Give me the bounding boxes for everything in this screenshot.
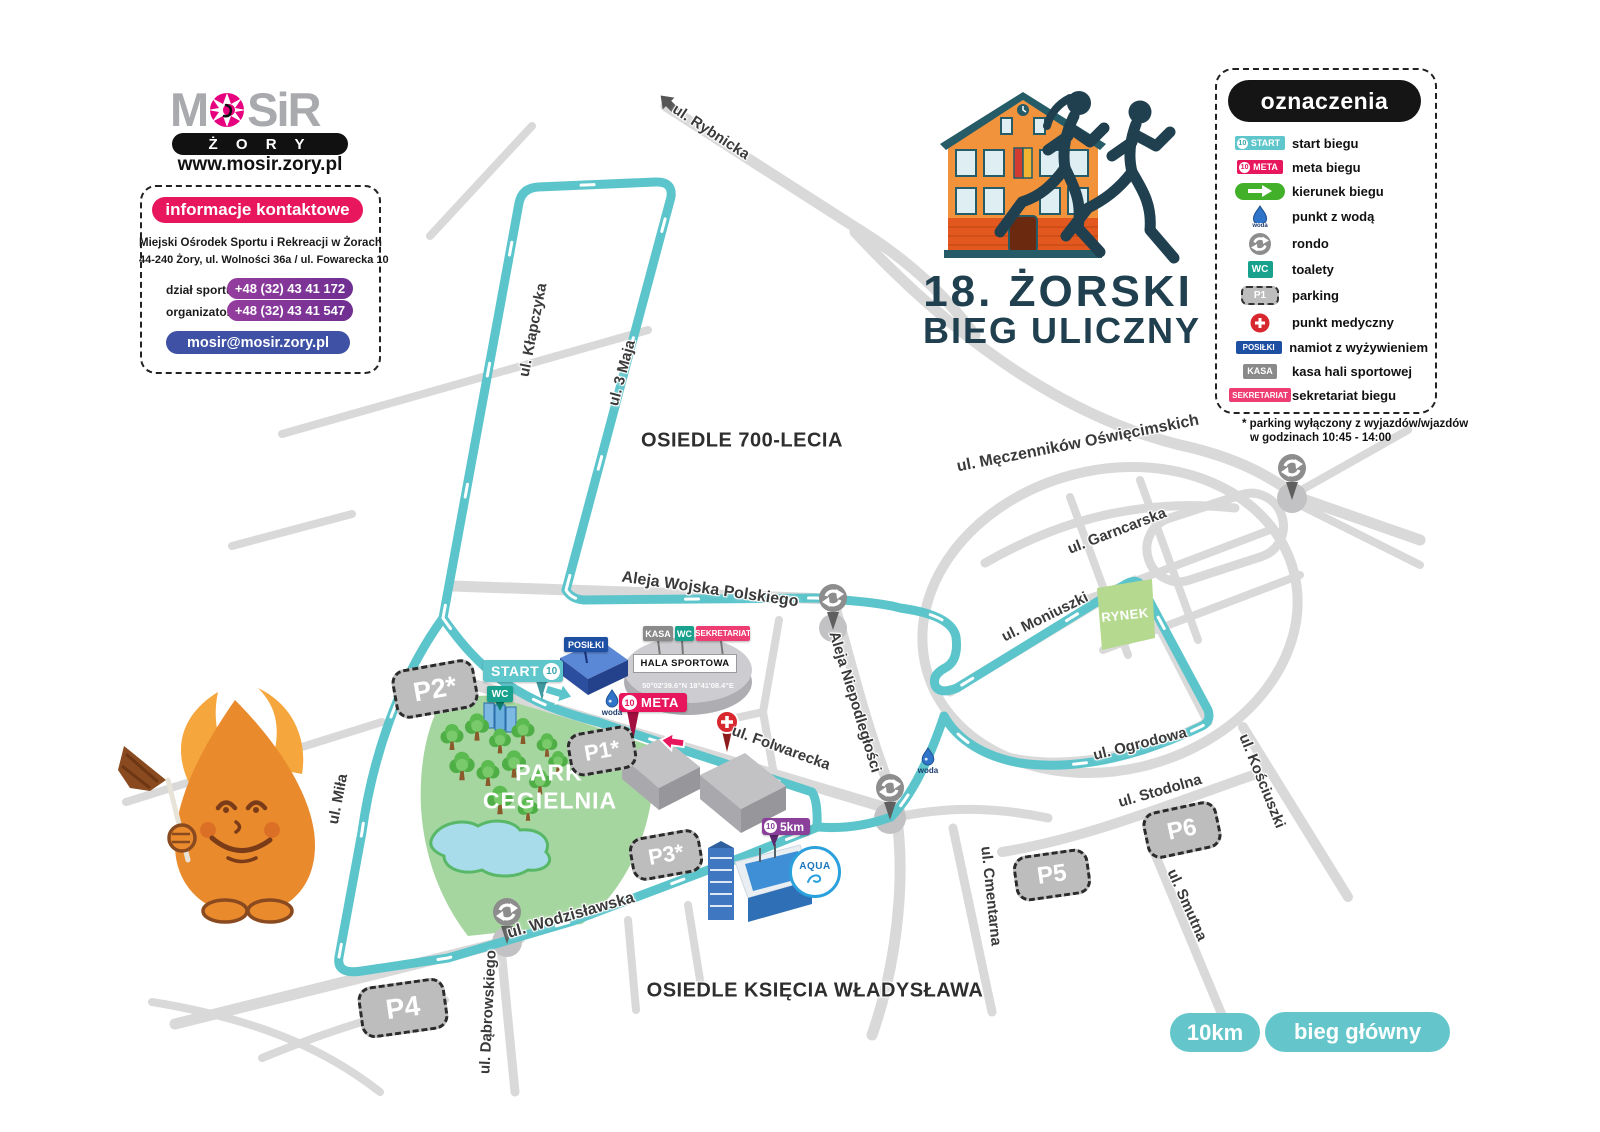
water-drop-icon: woda (1228, 205, 1292, 229)
parking-p5-label: P5 (1036, 859, 1069, 891)
legend-item-parking: P1 parking (1228, 282, 1428, 309)
legend-label-meals: namiot z wyżywieniem (1289, 340, 1428, 355)
legend-item-wc: WC toalety (1228, 257, 1428, 282)
kasa-flag: KASA (643, 626, 673, 641)
legend-start-num: 10 (1237, 138, 1248, 149)
contact-row-organizer-label: organizator (166, 305, 231, 319)
start-marker-label: START (491, 663, 539, 679)
legend-item-meta: 10 META meta biegu (1228, 155, 1428, 179)
kasa-legend-icon: KASA (1228, 364, 1292, 379)
start-badge-icon: 10 START (1228, 136, 1292, 150)
legend-label-secretariat: sekretariat biegu (1292, 388, 1396, 403)
legend-label-parking: parking (1292, 288, 1339, 303)
legend-item-medical: punkt medyczny (1228, 309, 1428, 336)
meta-marker-distance: 10 (622, 695, 637, 710)
legend-item-start: 10 START start biegu (1228, 131, 1428, 155)
posilki-legend-icon: POSIŁKI (1228, 341, 1289, 354)
sekretariat-flag: SEKRETARIAT (696, 626, 750, 641)
km5-marker-distance: 10 (764, 820, 777, 833)
contact-row-sport-phone: +48 (32) 43 41 172 (227, 278, 353, 299)
legend-label-start: start biegu (1292, 136, 1358, 151)
aquapark-logo-text: AQUA (799, 861, 830, 872)
start-marker-distance: 10 (543, 663, 560, 680)
mosir-logo-sir: SiR (247, 86, 319, 133)
legend-label-wc: toalety (1292, 262, 1334, 277)
aquapark-logo: AQUA (789, 846, 841, 898)
zory-city-label: Ż O R Y (209, 136, 312, 153)
contact-title: informacje kontaktowe (152, 197, 363, 223)
legend-item-rondo: rondo (1228, 230, 1428, 257)
medical-legend-icon (1228, 313, 1292, 333)
water-point-label: woda (602, 708, 622, 717)
start-marker: START 10 (483, 660, 563, 682)
parking-p6-label: P6 (1165, 813, 1200, 846)
zory-flame-mascot (118, 688, 315, 922)
zory-city-pill: Ż O R Y (172, 133, 348, 155)
parking-p1-label: P1* (582, 735, 621, 767)
contact-row-organizer-phone: +48 (32) 43 41 547 (227, 300, 353, 321)
wc-flag-hala: WC (675, 626, 694, 641)
sekretariat-legend-icon: SEKRETARIAT (1228, 388, 1292, 402)
contact-address: 44-240 Żory, ul. Wolności 36a / ul. Fowa… (139, 254, 379, 266)
parking-p2-label: P2* (411, 670, 459, 708)
seahorse-icon (805, 872, 825, 884)
meta-badge-icon: 10 META (1228, 160, 1292, 174)
legend-item-direction: kierunek biegu (1228, 179, 1428, 203)
distance-badge-10km: 10km (1170, 1013, 1260, 1052)
event-title-line2: BIEG ULICZNY (923, 310, 1201, 352)
parking-legend-icon: P1 (1228, 286, 1292, 305)
legend-label-cash: kasa hali sportowej (1292, 364, 1412, 379)
mosir-logo: M SiR (170, 86, 320, 133)
legend-start-text: START (1251, 138, 1280, 148)
legend-meta-num: 10 (1239, 162, 1250, 173)
water-point-label: woda (918, 766, 938, 775)
parking-p4-label: P4 (384, 990, 422, 1026)
roundabout-legend-icon (1228, 232, 1292, 256)
legend-woda-text: woda (1252, 223, 1267, 229)
meta-marker: 10 META (619, 693, 687, 712)
legend-items: 10 START start biegu 10 META meta biegu (1228, 131, 1428, 407)
legend-label-water: punkt z wodą (1292, 209, 1374, 224)
mosir-logo-m: M (170, 86, 207, 133)
race-map-poster: ul. Rybnicka ul. Kłapczyka ul. 3 Maja Al… (0, 0, 1600, 1132)
water-point-icon (606, 690, 618, 707)
legend-item-cash: KASA kasa hali sportowej (1228, 359, 1428, 383)
mosir-url: www.mosir.zory.pl (178, 154, 343, 176)
meta-marker-label: META (641, 695, 679, 710)
district-label-700lecia: OSIEDLE 700-LECIA (641, 430, 843, 453)
legend-label-direction: kierunek biegu (1292, 184, 1384, 199)
park-label-line2: CEGIELNIA (483, 788, 617, 815)
parking-p3-label: P3* (646, 839, 685, 871)
direction-arrow-icon (1228, 183, 1292, 200)
contact-email: mosir@mosir.zory.pl (166, 331, 350, 354)
parking-footnote-line1: * parking wyłączony z wyjazdów/wjazdów (1242, 418, 1468, 430)
wc-marker-start: WC (487, 686, 513, 702)
contact-org-name: Miejski Ośrodek Sportu i Rekreacji w Żor… (139, 237, 379, 249)
contact-row-sport-label: dział sportu (166, 283, 233, 297)
mosir-sun-icon (205, 88, 249, 132)
legend-item-secretariat: SEKRETARIAT sekretariat biegu (1228, 383, 1428, 407)
hala-sportowa-banner: HALA SPORTOWA (633, 654, 737, 673)
posilki-flag: POSIŁKI (564, 637, 608, 652)
legend-title: oznaczenia (1228, 80, 1421, 122)
legend-label-meta: meta biegu (1292, 160, 1361, 175)
legend-label-rondo: rondo (1292, 236, 1329, 251)
hala-gps-coords: 50°02'39.6"N 18°41'08.4"E (642, 681, 734, 690)
legend-meta-text: META (1253, 162, 1278, 172)
parking-footnote-line2: w godzinach 10:45 - 14:00 (1250, 432, 1391, 444)
legend-label-medical: punkt medyczny (1292, 315, 1394, 330)
km5-marker: 10 5km (762, 818, 810, 835)
race-type-badge: bieg główny (1265, 1012, 1450, 1052)
km5-marker-label: 5km (780, 820, 804, 834)
district-label-wladyslawa: OSIEDLE KSIĘCIA WŁADYSŁAWA (647, 980, 984, 1003)
wc-legend-icon: WC (1228, 261, 1292, 278)
legend-item-meals: POSIŁKI namiot z wyżywieniem (1228, 336, 1428, 359)
legend-item-water: woda punkt z wodą (1228, 203, 1428, 230)
